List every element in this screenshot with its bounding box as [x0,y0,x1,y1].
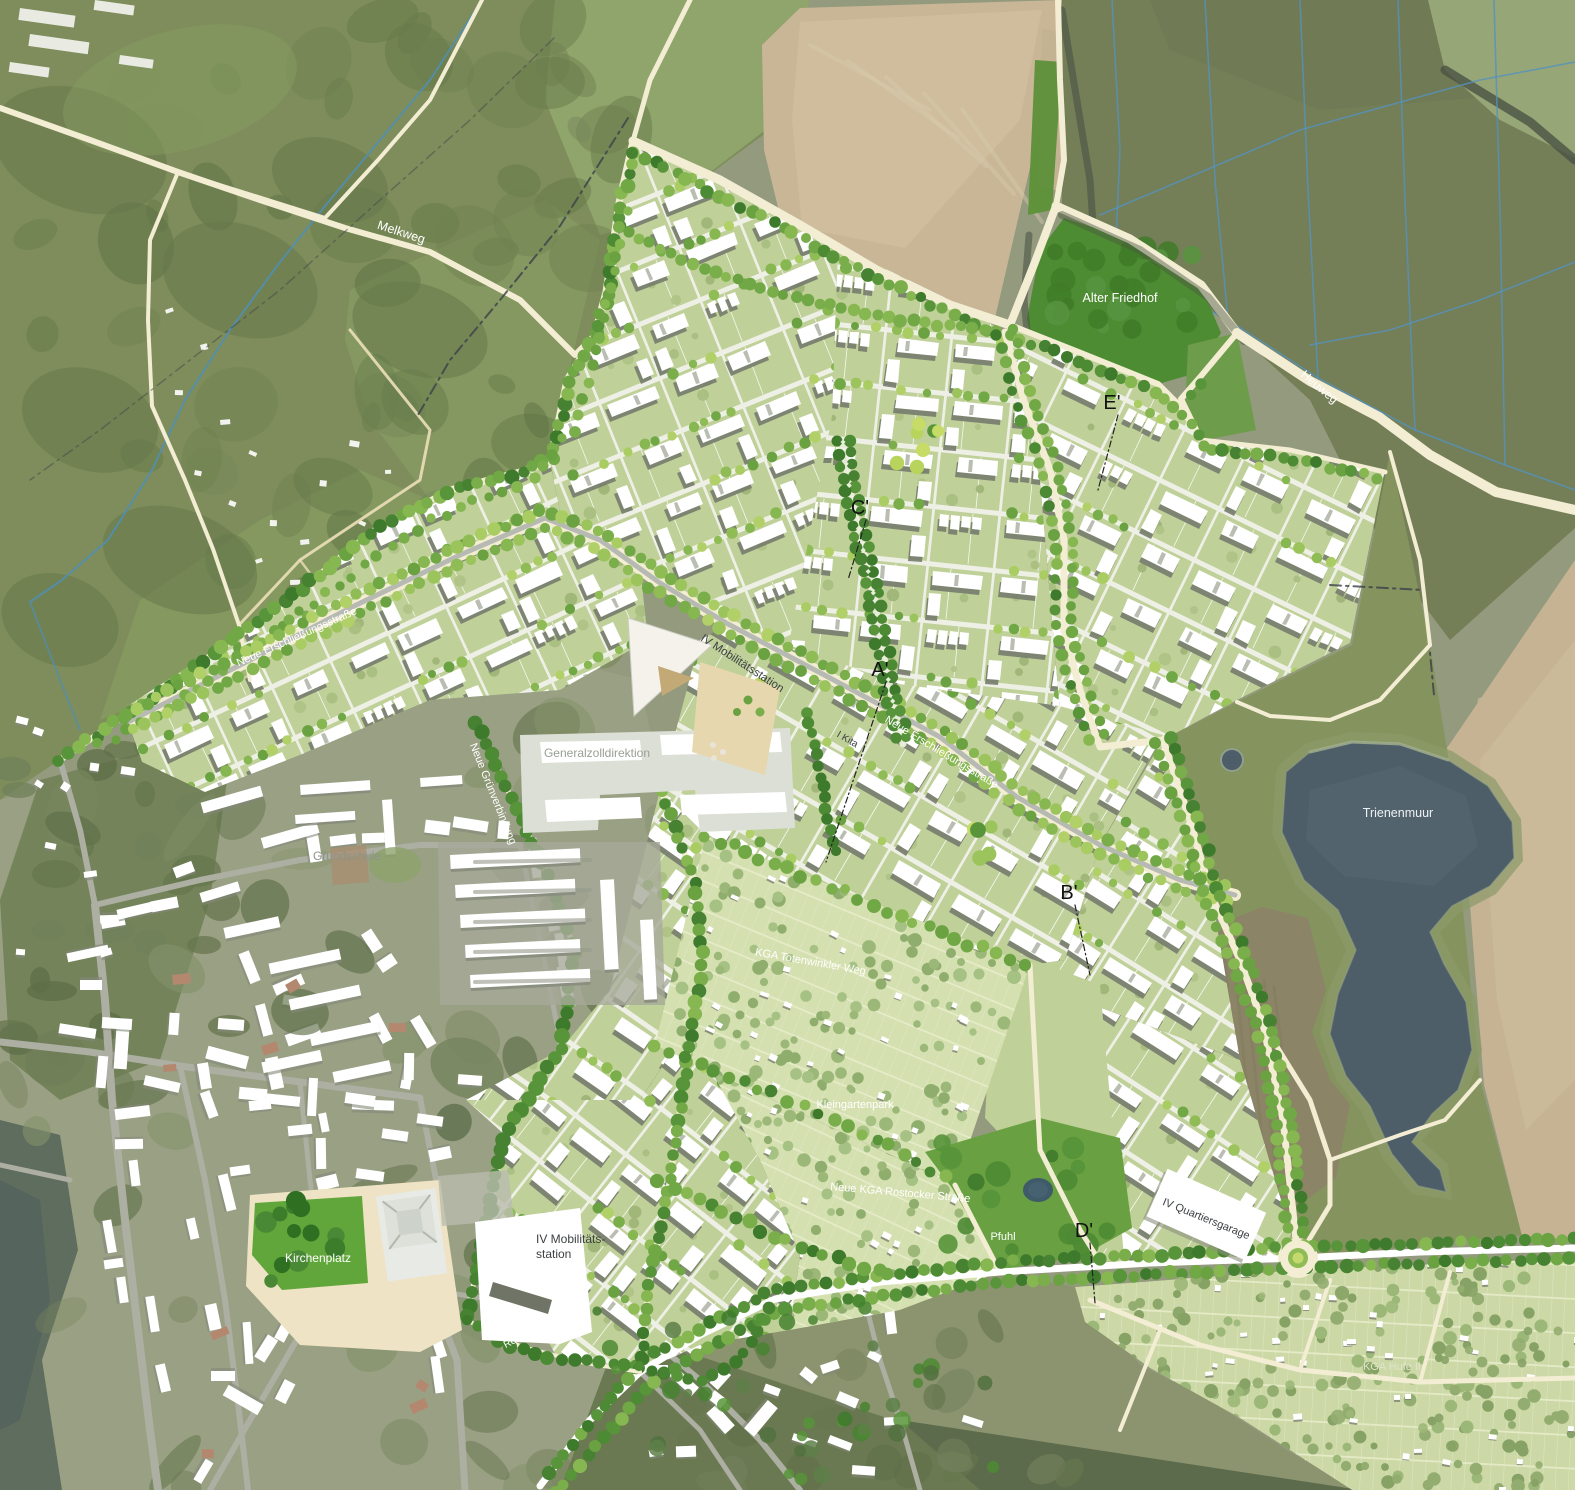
svg-text:Grundschule: Grundschule [313,849,381,863]
svg-text:A': A' [871,659,888,681]
svg-text:D': D' [1075,1220,1093,1242]
svg-text:Trienenmuur: Trienenmuur [1363,806,1433,820]
svg-text:C': C' [851,497,869,519]
svg-text:Kirchenplatz: Kirchenplatz [285,1251,351,1265]
svg-text:Alter Friedhof: Alter Friedhof [1082,291,1158,305]
svg-text:Pfuhl: Pfuhl [990,1231,1015,1243]
svg-text:Kleingartenpark: Kleingartenpark [816,1099,894,1111]
svg-text:IV Mobilitäts-: IV Mobilitäts- [536,1232,605,1246]
svg-text:KGA Hufe II: KGA Hufe II [1363,1361,1421,1373]
svg-text:E': E' [1103,392,1120,414]
svg-text:B': B' [1060,882,1077,904]
svg-text:Generalzolldirektion: Generalzolldirektion [544,746,650,760]
svg-text:station: station [536,1247,571,1261]
